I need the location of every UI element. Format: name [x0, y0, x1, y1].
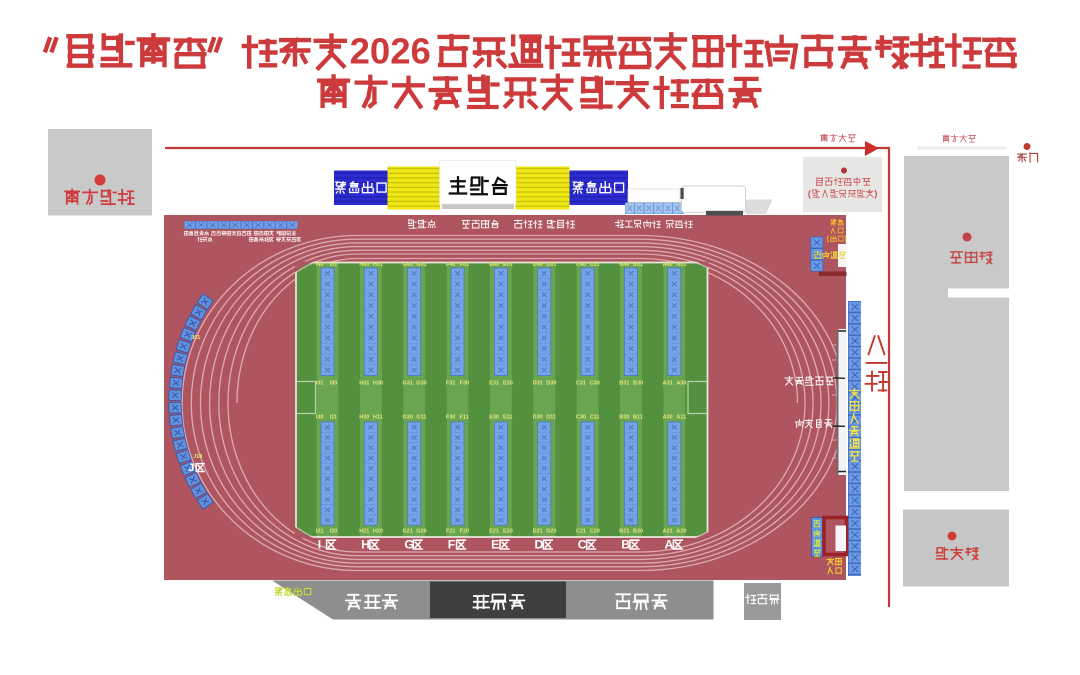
svg-text:F20: F20	[460, 528, 469, 534]
svg-text:H30: H30	[359, 415, 369, 421]
svg-text:F21: F21	[446, 528, 455, 534]
svg-text:B01: B01	[633, 262, 643, 268]
svg-text:I01: I01	[330, 262, 338, 268]
svg-text:H20: H20	[373, 528, 383, 534]
svg-text:C11: C11	[590, 415, 600, 421]
svg-text:I11: I11	[330, 415, 337, 421]
svg-text:B20: B20	[633, 528, 643, 534]
svg-text:H: H	[361, 538, 370, 552]
svg-text:B21: B21	[619, 528, 629, 534]
svg-text:E21: E21	[489, 528, 499, 534]
svg-text:C31: C31	[576, 381, 586, 387]
svg-text:E20: E20	[503, 528, 513, 534]
svg-text:C01: C01	[590, 262, 600, 268]
svg-text:F01: F01	[460, 262, 469, 268]
svg-text:J: J	[188, 462, 194, 474]
svg-text:A30: A30	[676, 381, 686, 387]
svg-text:F30: F30	[446, 415, 455, 421]
svg-text:A11: A11	[676, 415, 686, 421]
svg-text:G40: G40	[403, 262, 413, 268]
svg-text:I: I	[318, 538, 321, 552]
svg-text:H11: H11	[373, 415, 383, 421]
svg-text:G21: G21	[403, 528, 413, 534]
svg-text:E11: E11	[503, 415, 512, 421]
svg-text:B: B	[621, 538, 630, 552]
svg-text:H40: H40	[359, 262, 369, 268]
svg-text:F: F	[448, 538, 455, 552]
svg-text:G: G	[404, 538, 413, 552]
svg-text:H21: H21	[359, 528, 369, 534]
svg-text:G01: G01	[416, 262, 426, 268]
svg-text:A: A	[665, 538, 674, 552]
svg-text:I30: I30	[330, 381, 338, 387]
svg-text:H30: H30	[373, 381, 383, 387]
svg-text:D40: D40	[533, 262, 543, 268]
svg-text:D30: D30	[546, 381, 556, 387]
svg-text:F30: F30	[460, 381, 469, 387]
svg-text:G31: G31	[403, 381, 413, 387]
svg-text:F40: F40	[446, 262, 455, 268]
svg-text:2026: 2026	[350, 30, 431, 71]
svg-text:I40: I40	[316, 262, 324, 268]
svg-text:A40: A40	[663, 262, 673, 268]
svg-text:D30: D30	[533, 415, 543, 421]
svg-text:A20: A20	[676, 528, 686, 534]
svg-text:A21: A21	[663, 528, 673, 534]
svg-text:E31: E31	[489, 381, 499, 387]
svg-text:G30: G30	[416, 381, 426, 387]
svg-text:C21: C21	[576, 528, 586, 534]
svg-text:H31: H31	[359, 381, 369, 387]
svg-text:C30: C30	[576, 415, 586, 421]
svg-text:I30: I30	[316, 415, 324, 421]
svg-text:D11: D11	[546, 415, 556, 421]
svg-text:D20: D20	[546, 528, 556, 534]
svg-text:E30: E30	[503, 381, 513, 387]
svg-text:I31: I31	[316, 381, 324, 387]
svg-text:F31: F31	[446, 381, 455, 387]
svg-text:C20: C20	[590, 528, 600, 534]
svg-text:G11: G11	[416, 415, 426, 421]
svg-text:E: E	[491, 538, 499, 552]
svg-text:G20: G20	[416, 528, 426, 534]
svg-text:): )	[874, 189, 877, 199]
svg-text:C: C	[578, 538, 587, 552]
svg-text:B11: B11	[633, 415, 643, 421]
svg-text:B30: B30	[633, 381, 643, 387]
svg-text:C30: C30	[590, 381, 600, 387]
svg-text:A01: A01	[676, 262, 686, 268]
svg-text:C40: C40	[576, 262, 586, 268]
svg-text:D21: D21	[533, 528, 543, 534]
svg-text:E40: E40	[489, 262, 499, 268]
svg-text:D01: D01	[546, 262, 556, 268]
svg-text:A30: A30	[663, 415, 673, 421]
svg-text:A31: A31	[663, 381, 673, 387]
svg-text:(: (	[808, 189, 811, 199]
svg-text:B31: B31	[619, 381, 629, 387]
svg-text:G30: G30	[403, 415, 413, 421]
svg-text:J18: J18	[193, 454, 202, 460]
svg-text:D31: D31	[533, 381, 543, 387]
svg-text:J01: J01	[191, 335, 200, 341]
svg-text:E30: E30	[489, 415, 499, 421]
svg-text:F11: F11	[460, 415, 469, 421]
svg-text:I20: I20	[330, 528, 338, 534]
svg-text:B40: B40	[619, 262, 629, 268]
svg-text:D: D	[535, 538, 544, 552]
svg-text:E01: E01	[503, 262, 513, 268]
svg-text:B30: B30	[619, 415, 629, 421]
svg-text:H01: H01	[373, 262, 383, 268]
svg-text:I21: I21	[316, 528, 324, 534]
